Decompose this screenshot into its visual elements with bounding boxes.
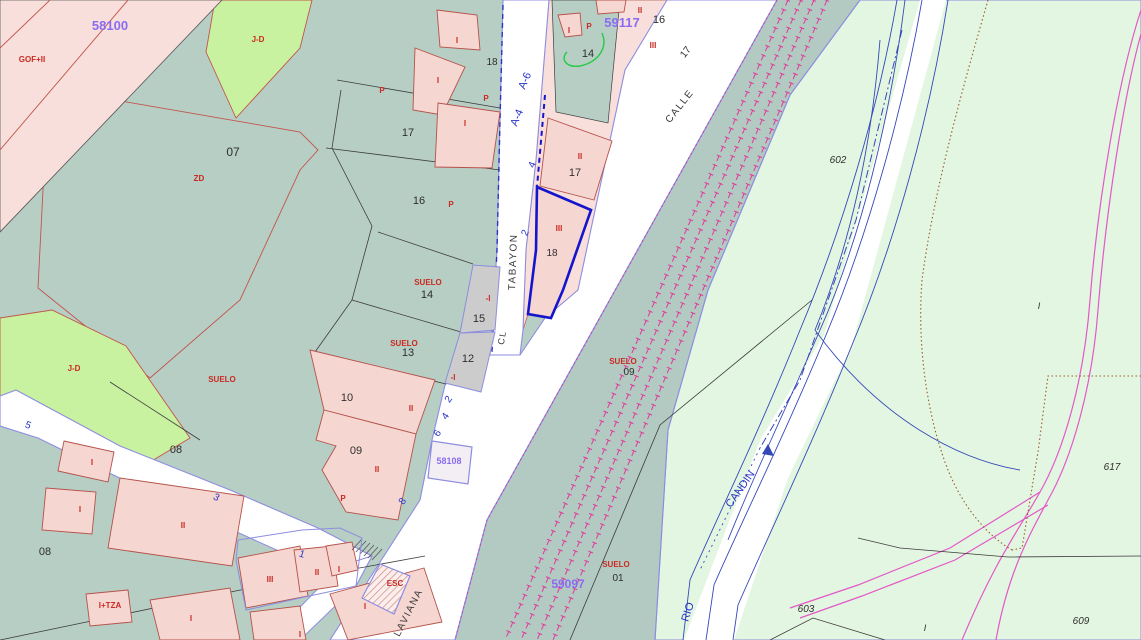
map-label-i: I [190,614,192,623]
map-label-17: 17 [569,167,581,179]
map-label-58108: 58108 [436,456,461,466]
map-label-i-tza: I+TZA [99,601,122,610]
map-label-tabayon: TABAYON [507,233,520,290]
map-label-09: 09 [350,445,362,457]
map-label-gof-ii: GOF+II [19,55,45,64]
map-label-suelo: SUELO [414,278,442,287]
map-label-14: 14 [582,48,594,60]
map-label-58100: 58100 [92,18,128,33]
building[interactable] [326,542,358,576]
building[interactable] [250,606,306,640]
building[interactable] [596,0,626,14]
map-label-i: I [437,76,439,85]
map-label-i: I [91,458,93,467]
map-label-p: P [448,200,454,209]
map-label-p: P [379,86,385,95]
map-label-ii: II [578,152,582,161]
map-label-ii: II [375,465,379,474]
map-label-p: P [586,22,592,31]
map-label-16: 16 [653,14,665,26]
map-label-08: 08 [39,546,51,558]
map-label-suelo: SUELO [208,375,236,384]
map-label-09: 09 [623,367,635,378]
map-svg[interactable]: 5810059117590975810807171614151312100908… [0,0,1141,640]
map-label-i: I [338,565,340,574]
building[interactable] [435,103,500,168]
map-label-59097: 59097 [551,577,585,591]
map-label-12: 12 [462,353,474,365]
building[interactable] [42,488,96,534]
map-label-ii: II [181,521,185,530]
map-label-617: 617 [1104,462,1121,473]
map-label-ii: II [315,568,319,577]
map-label-08: 08 [170,444,182,456]
map-label-17: 17 [402,127,414,139]
map-label-i: I [464,119,466,128]
map-label-15: 15 [473,313,485,325]
map-label-j-d: J-D [252,35,265,44]
map-label-iii: III [267,575,274,584]
map-label-iii: III [650,41,657,50]
map-label-p: P [340,494,346,503]
map-label-14: 14 [421,289,433,301]
building[interactable] [437,10,480,50]
map-label-suelo: SUELO [609,357,637,366]
map-label-01: 01 [612,573,624,584]
map-label-10: 10 [341,392,353,404]
map-label-ii: II [638,6,642,15]
map-label-suelo: SUELO [390,339,418,348]
map-label-609: 609 [1073,616,1090,627]
map-label-07: 07 [226,145,240,159]
map-label-603: 603 [798,604,815,615]
map-label-i: I [456,36,458,45]
map-label-i: I [79,505,81,514]
cadastral-map-canvas[interactable]: 5810059117590975810807171614151312100908… [0,0,1141,640]
map-label--i: -I [451,373,456,382]
map-label-zd: ZD [194,174,205,183]
map-label-p: P [483,94,489,103]
map-label-suelo: SUELO [602,560,630,569]
map-label-esc: ESC [387,579,404,588]
map-label-59117: 59117 [604,15,639,30]
map-label-13: 13 [402,347,414,359]
map-label-ii: II [409,404,413,413]
map-label-i: I [568,26,570,35]
map-label-j-d: J-D [68,364,81,373]
map-label-16: 16 [413,195,425,207]
map-label-iii: III [556,224,563,233]
map-label-18: 18 [486,57,498,68]
map-label-602: 602 [830,155,847,166]
map-label-i: I [364,602,366,611]
map-label--i: -I [486,294,491,303]
map-label-i: I [299,630,301,639]
map-label-18: 18 [546,248,558,259]
